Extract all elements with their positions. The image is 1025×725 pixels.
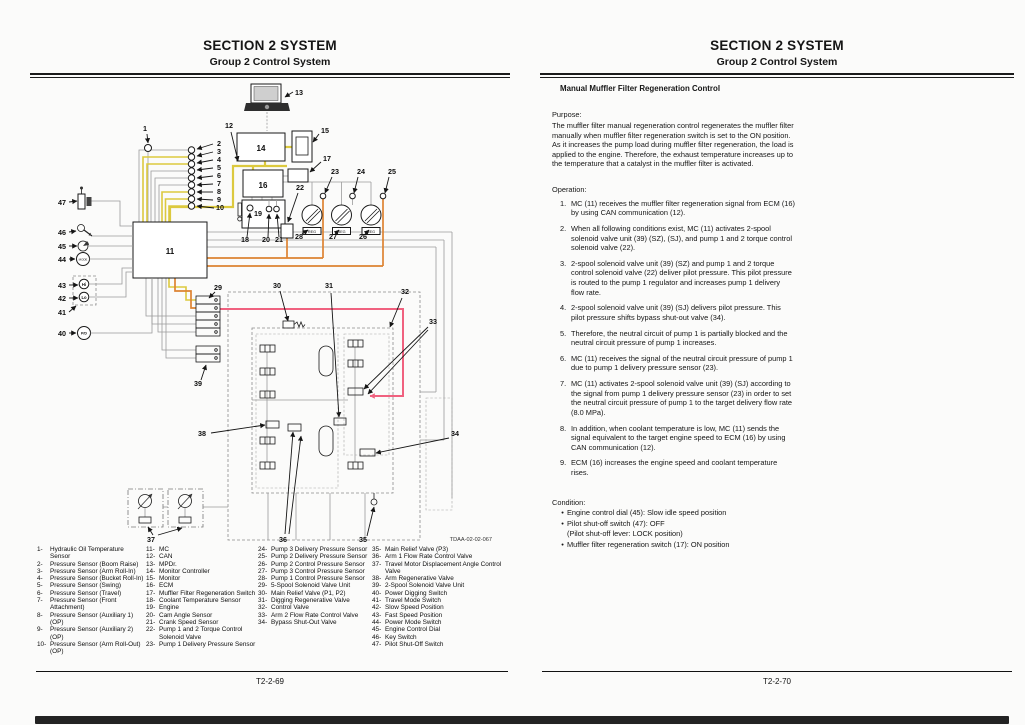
legend-item: 30-Main Relief Valve (P1, P2) xyxy=(258,590,370,597)
legend-item: 25-Pump 2 Delivery Pressure Sensor xyxy=(258,553,370,560)
condition-list: •Engine control dial (45): Slow idle spe… xyxy=(552,508,795,550)
operation-step: 5.Therefore, the neutral circuit of pump… xyxy=(552,329,795,348)
operation-step: 2.When all following conditions exist, M… xyxy=(552,224,795,253)
callout-25: 25 xyxy=(388,167,396,176)
section-title-right: SECTION 2 SYSTEM xyxy=(540,38,1014,53)
callout-18: 18 xyxy=(241,235,249,244)
legend-item: 28-Pump 1 Control Pressure Sensor xyxy=(258,575,370,582)
legend-item: 43-Fast Speed Position xyxy=(372,612,503,619)
legend-item: 17-Muffler Filter Regeneration Switch xyxy=(146,590,256,597)
callout-1: 1 xyxy=(143,124,147,133)
callout-27: 27 xyxy=(329,232,337,241)
legend-item: 12-CAN xyxy=(146,553,256,560)
legend-item: 46-Key Switch xyxy=(372,634,503,641)
callout-24: 24 xyxy=(357,167,365,176)
coolant-temp-sensor-icon xyxy=(247,205,253,211)
legend-item: 45-Engine Control Dial xyxy=(372,626,503,633)
arm2-flow-rate-control-valve-icon xyxy=(348,388,363,395)
callout-39: 39 xyxy=(194,379,202,388)
callout-44: 44 xyxy=(58,255,66,264)
operation-steps: 1.MC (11) receives the muffler filter re… xyxy=(552,199,795,478)
legend-item: 20-Cam Angle Sensor xyxy=(146,612,256,619)
control-valve-spools xyxy=(260,321,377,505)
legend-item: 47-Pilot Shut-Off Switch xyxy=(372,641,503,648)
condition-item: •Pilot shut-off switch (47): OFF (Pilot … xyxy=(552,519,795,538)
svg-text:P/D: P/D xyxy=(81,332,87,336)
callout-34: 34 xyxy=(451,429,459,438)
legend-item: 36-Arm 1 Flow Rate Control Valve xyxy=(372,553,503,560)
callout-36: 36 xyxy=(279,535,287,544)
group-title-left: Group 2 Control System xyxy=(30,56,510,68)
main-relief-valve-p1p2-icon xyxy=(283,321,305,328)
callout-31: 31 xyxy=(325,281,333,290)
purpose-paragraph: As it increases the pump load during muf… xyxy=(552,140,795,169)
monitor-icon xyxy=(292,131,312,162)
mpdr-laptop-icon xyxy=(244,84,290,111)
cam-angle-sensor-icon xyxy=(266,206,272,212)
main-relief-valve-p3-icon xyxy=(371,493,377,505)
page-number-right: T2-2-70 xyxy=(540,677,1014,686)
muffler-regen-switch-box xyxy=(288,169,308,182)
callout-26: 26 xyxy=(359,232,367,241)
condition-label: Condition: xyxy=(552,498,795,508)
pump2-delivery-pressure-sensor-icon xyxy=(350,193,356,199)
reg-label-1: REG xyxy=(308,230,316,234)
bullet-icon: • xyxy=(558,508,567,518)
callout-15: 15 xyxy=(321,126,329,135)
svg-text:MODE: MODE xyxy=(79,257,88,261)
legend-item: 33-Arm 2 Flow Rate Control Valve xyxy=(258,612,370,619)
mc-number: 11 xyxy=(166,247,175,256)
callout-28: 28 xyxy=(295,232,303,241)
callout-33: 33 xyxy=(429,317,437,326)
legend-column-4: 35-Main Relief Valve (P3)36-Arm 1 Flow R… xyxy=(372,546,503,655)
power-digging-switch-icon: P/D xyxy=(78,278,153,340)
bullet-icon: • xyxy=(558,519,567,538)
callout-23: 23 xyxy=(331,167,339,176)
travel-motor-right xyxy=(168,489,203,527)
operation-step: 7.MC (11) activates 2-spool solenoid val… xyxy=(552,379,795,418)
callout-10: 10 xyxy=(216,203,224,212)
monitor-controller-number: 14 xyxy=(257,144,266,153)
legend-item: 8-Pressure Sensor (Auxiliary 1) (OP) xyxy=(37,612,144,627)
figure-code: TDAA-02-02-067 xyxy=(450,537,492,543)
legend-item: 9-Pressure Sensor (Auxiliary 2) (OP) xyxy=(37,626,144,641)
pump3-delivery-pressure-sensor-icon xyxy=(380,193,386,199)
legend-item: 38-Arm Regenerative Valve xyxy=(372,575,503,582)
callout-17: 17 xyxy=(323,154,331,163)
callout-40: 40 xyxy=(58,329,66,338)
page-number-left: T2-2-69 xyxy=(30,677,510,686)
legend-item: 40-Power Digging Switch xyxy=(372,590,503,597)
legend-item: 4-Pressure Sensor (Bucket Roll-In) xyxy=(37,575,144,582)
legend-item: 11-MC xyxy=(146,546,256,553)
center-bypass-passage-lower xyxy=(319,426,333,456)
legend-item: 35-Main Relief Valve (P3) xyxy=(372,546,503,553)
callout-47: 47 xyxy=(58,198,66,207)
footer-rule-right xyxy=(542,671,1012,672)
body-text: Manual Muffler Filter Regeneration Contr… xyxy=(552,84,795,551)
callout-20: 20 xyxy=(262,235,270,244)
fast-speed-hi-label: Hi xyxy=(82,282,86,287)
legend-item: 10-Pressure Sensor (Arm Roll-Out) (OP) xyxy=(37,641,144,656)
engine-control-dial-icon xyxy=(78,241,133,251)
legend-item: 5-Pressure Sensor (Swing) xyxy=(37,582,144,589)
legend-column-1: 1-Hydraulic Oil Temperature Sensor2-Pres… xyxy=(37,546,144,655)
callout-43: 43 xyxy=(58,281,66,290)
right-page: SECTION 2 SYSTEM Group 2 Control System … xyxy=(540,0,1014,725)
five-spool-solenoid-valve-unit xyxy=(196,296,220,336)
operation-step: 6.MC (11) receives the signal of the neu… xyxy=(552,354,795,373)
pilot-shutoff-switch-icon xyxy=(78,187,133,227)
legend-column-3: 24-Pump 3 Delivery Pressure Sensor25-Pum… xyxy=(258,546,370,655)
legend-item: 19-Engine xyxy=(146,604,256,611)
callout-29: 29 xyxy=(214,283,222,292)
legend-item: 26-Pump 2 Control Pressure Sensor xyxy=(258,561,370,568)
purpose-paragraph: The muffler filter manual regeneration c… xyxy=(552,121,795,140)
legend-item: 41-Travel Mode Switch xyxy=(372,597,503,604)
valve-assembly-outline xyxy=(228,292,452,540)
legend-item: 3-Pressure Sensor (Arm Roll-In) xyxy=(37,568,144,575)
legend-column-2: 11-MC12-CAN13-MPDr.14-Monitor Controller… xyxy=(146,546,256,655)
legend-item: 1-Hydraulic Oil Temperature Sensor xyxy=(37,546,144,561)
legend-item: 15-Monitor xyxy=(146,575,256,582)
header-double-rule-right xyxy=(540,73,1014,78)
operation-step: 3.2-spool solenoid valve unit (39) (SZ) … xyxy=(552,259,795,298)
center-bypass-passage-upper xyxy=(319,346,333,376)
purpose-paragraphs: The muffler filter manual regeneration c… xyxy=(552,121,795,169)
legend-item: 42-Slow Speed Position xyxy=(372,604,503,611)
pump1-delivery-pressure-sensor-icon xyxy=(320,193,326,199)
legend-item: 2-Pressure Sensor (Boom Raise) xyxy=(37,561,144,568)
diagram-legend: 1-Hydraulic Oil Temperature Sensor2-Pres… xyxy=(37,546,503,655)
legend-item: 31-Digging Regenerative Valve xyxy=(258,597,370,604)
legend-item: 39-2-Spool Solenoid Valve Unit xyxy=(372,582,503,589)
legend-item: 29-5-Spool Solenoid Valve Unit xyxy=(258,582,370,589)
arm-regenerative-valve-icon xyxy=(266,421,279,428)
legend-item: 7-Pressure Sensor (Front Attachment) xyxy=(37,597,144,612)
legend-item: 18-Coolant Temperature Sensor xyxy=(146,597,256,604)
legend-item: 27-Pump 3 Control Pressure Sensor xyxy=(258,568,370,575)
pump-2: REG xyxy=(332,182,356,235)
callout-42: 42 xyxy=(58,294,66,303)
engine-number: 19 xyxy=(254,209,262,218)
legend-item: 22-Pump 1 and 2 Torque Control Solenoid … xyxy=(146,626,256,641)
topic-title: Manual Muffler Filter Regeneration Contr… xyxy=(560,84,795,94)
bullet-icon: • xyxy=(558,540,567,550)
callout-22: 22 xyxy=(296,183,304,192)
legend-item: 14-Monitor Controller xyxy=(146,568,256,575)
legend-item: 32-Control Valve xyxy=(258,604,370,611)
callout-38: 38 xyxy=(198,429,206,438)
callout-12: 12 xyxy=(225,121,233,130)
operation-step: 9.ECM (16) increases the engine speed an… xyxy=(552,458,795,477)
control-valve-outline xyxy=(252,328,393,493)
scan-edge-bar xyxy=(35,716,1009,724)
highlighted-circuit-line xyxy=(220,309,403,396)
legend-item: 34-Bypass Shut-Out Valve xyxy=(258,619,370,626)
crank-speed-sensor-icon xyxy=(274,206,280,212)
two-spool-solenoid-valve-unit xyxy=(196,346,220,362)
operation-step: 4.2-spool solenoid valve unit (39) (SJ) … xyxy=(552,303,795,322)
legend-item: 24-Pump 3 Delivery Pressure Sensor xyxy=(258,546,370,553)
legend-item: 21-Crank Speed Sensor xyxy=(146,619,256,626)
operation-step: 8.In addition, when coolant temperature … xyxy=(552,424,795,453)
callout-32: 32 xyxy=(401,287,409,296)
operation-step: 1.MC (11) receives the muffler filter re… xyxy=(552,199,795,218)
left-page: SECTION 2 SYSTEM Group 2 Control System xyxy=(30,0,510,725)
legend-item: 44-Power Mode Switch xyxy=(372,619,503,626)
travel-mode-switch-icon: Hi Lo xyxy=(73,268,133,305)
footer-rule-left xyxy=(36,671,508,672)
control-system-diagram: REG REG REG xyxy=(30,78,510,544)
callout-46: 46 xyxy=(58,228,66,237)
ecm-number: 16 xyxy=(259,181,268,190)
purpose-label: Purpose: xyxy=(552,110,795,120)
section-title-left: SECTION 2 SYSTEM xyxy=(30,38,510,53)
arm1-flow-rate-control-valve-icon xyxy=(288,424,301,431)
pump-3: REG xyxy=(361,182,386,235)
callout-30: 30 xyxy=(273,281,281,290)
callout-13: 13 xyxy=(295,88,303,97)
legend-item: 37-Travel Motor Displacement Angle Contr… xyxy=(372,561,503,576)
operation-label: Operation: xyxy=(552,185,795,195)
legend-item: 13-MPDr. xyxy=(146,561,256,568)
legend-item: 16-ECM xyxy=(146,582,256,589)
callout-35: 35 xyxy=(359,535,367,544)
callout-45: 45 xyxy=(58,242,66,251)
legend-item: 23-Pump 1 Delivery Pressure Sensor xyxy=(146,641,256,648)
legend-item: 6-Pressure Sensor (Travel) xyxy=(37,590,144,597)
travel-motor-left xyxy=(128,489,163,527)
slow-speed-lo-label: Lo xyxy=(81,295,87,300)
power-mode-switch-icon: MODE xyxy=(77,253,134,266)
condition-item: •Engine control dial (45): Slow idle spe… xyxy=(552,508,795,518)
group-title-right: Group 2 Control System xyxy=(540,56,1014,68)
callout-37: 37 xyxy=(147,535,155,544)
condition-item: •Muffler filter regeneration switch (17)… xyxy=(552,540,795,550)
callout-41: 41 xyxy=(58,308,66,317)
callout-21: 21 xyxy=(275,235,283,244)
